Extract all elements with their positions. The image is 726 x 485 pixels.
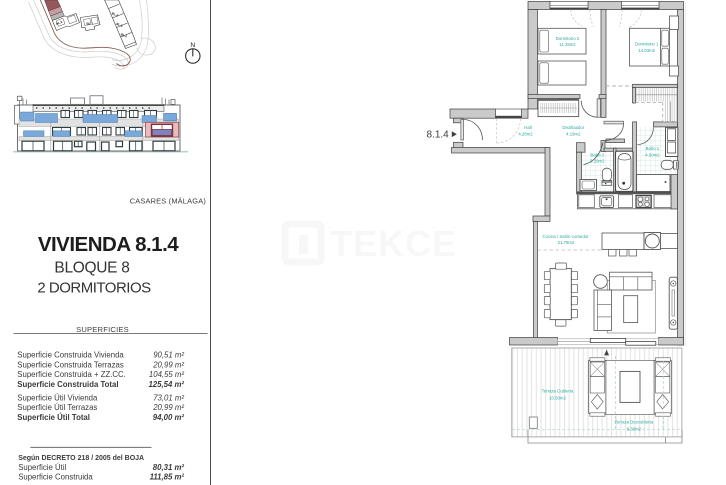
svg-text:73,01 m²: 73,01 m² (153, 393, 184, 402)
svg-text:111,85 m²: 111,85 m² (150, 473, 185, 482)
svg-text:20,99 m²: 20,99 m² (152, 403, 184, 412)
svg-text:Dormitorio 1: Dormitorio 1 (635, 41, 659, 46)
svg-text:Baño 2: Baño 2 (590, 153, 604, 158)
svg-text:10.50m2: 10.50m2 (549, 396, 566, 401)
svg-text:8.1.4: 8.1.4 (427, 130, 450, 141)
svg-text:Superficie Útil Terrazas: Superficie Útil Terrazas (17, 403, 97, 412)
svg-text:Distribuidor: Distribuidor (562, 125, 584, 130)
svg-text:SUPERFICIES: SUPERFICIES (76, 325, 129, 334)
svg-text:14.03m2: 14.03m2 (638, 48, 655, 53)
svg-text:VIVIENDA 8.1.4: VIVIENDA 8.1.4 (38, 233, 179, 256)
svg-text:Superficie Construida Terrazas: Superficie Construida Terrazas (17, 360, 124, 369)
svg-text:BLOQUE 8: BLOQUE 8 (54, 260, 129, 277)
svg-text:TEKCE: TEKCE (330, 223, 457, 264)
svg-text:Superficie Construida + ZZ.CC.: Superficie Construida + ZZ.CC. (17, 370, 126, 379)
svg-text:80,31 m²: 80,31 m² (153, 463, 185, 472)
svg-text:3.29m2: 3.29m2 (590, 159, 605, 164)
svg-text:Superficie Construida: Superficie Construida (18, 473, 93, 482)
svg-text:Hall: Hall (524, 125, 531, 130)
svg-text:Baño 1: Baño 1 (646, 146, 660, 151)
svg-text:Según DECRETO 218 / 2005 del B: Según DECRETO 218 / 2005 del BOJA (18, 455, 144, 462)
svg-text:9.30m2: 9.30m2 (627, 427, 642, 432)
svg-text:104,55 m²: 104,55 m² (149, 370, 185, 379)
svg-text:4.19m2: 4.19m2 (566, 132, 581, 137)
svg-text:Dormitorio 2: Dormitorio 2 (556, 36, 580, 41)
svg-text:20,99 m²: 20,99 m² (152, 360, 184, 369)
svg-text:Superficie Construida Vivienda: Superficie Construida Vivienda (17, 351, 124, 360)
svg-text:21.78m2: 21.78m2 (558, 240, 575, 245)
svg-text:Superficie Útil Vivienda: Superficie Útil Vivienda (17, 393, 98, 402)
svg-text:BL.1: BL.1 (87, 22, 94, 26)
svg-text:Superficie Útil: Superficie Útil (18, 463, 66, 472)
svg-text:N: N (190, 42, 195, 49)
svg-text:125,54 m²: 125,54 m² (148, 380, 184, 389)
svg-text:Terraza Cubierta: Terraza Cubierta (542, 389, 574, 394)
svg-text:90,51 m²: 90,51 m² (153, 351, 184, 360)
svg-text:Superficie Útil Total: Superficie Útil Total (17, 413, 90, 422)
svg-text:4.30m2: 4.30m2 (645, 152, 660, 157)
svg-text:Superficie Construida Total: Superficie Construida Total (17, 380, 118, 389)
svg-text:94,00 m²: 94,00 m² (153, 413, 185, 422)
svg-text:CASARES (MÁLAGA): CASARES (MÁLAGA) (130, 197, 206, 206)
svg-text:4.28m2: 4.28m2 (518, 132, 533, 137)
svg-text:Cocina / Salón-comedor: Cocina / Salón-comedor (542, 234, 589, 239)
svg-text:11.28m2: 11.28m2 (559, 42, 576, 47)
svg-text:Terraza Descubierta: Terraza Descubierta (615, 420, 654, 425)
svg-text:2 DORMITORIOS: 2 DORMITORIOS (37, 280, 151, 297)
